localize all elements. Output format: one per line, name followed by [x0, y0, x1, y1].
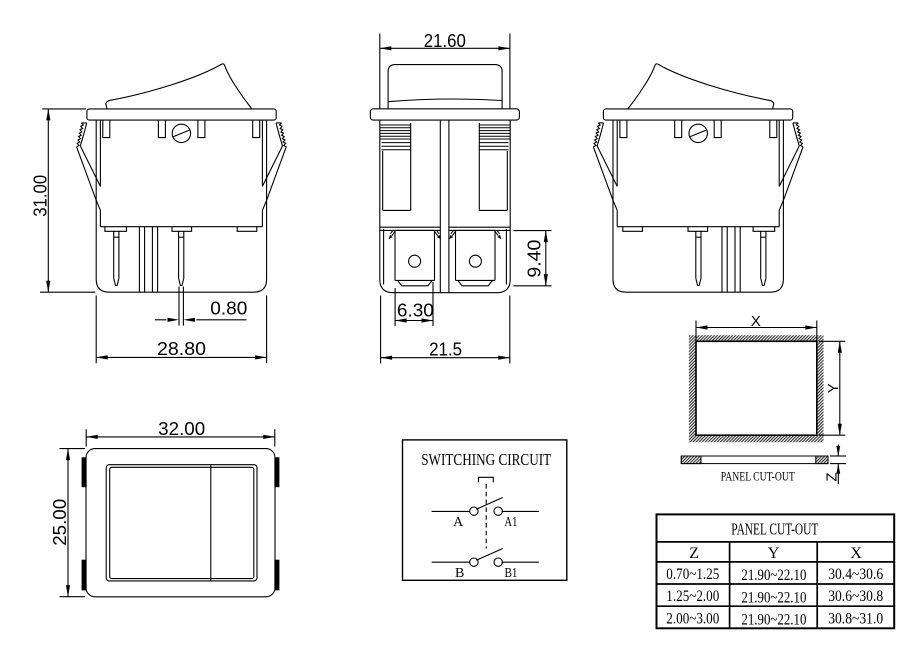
svg-text:30.8~31.0: 30.8~31.0: [828, 610, 883, 627]
svg-text:B1: B1: [505, 566, 518, 581]
svg-text:9.40: 9.40: [525, 240, 545, 278]
svg-text:PANEL CUT-OUT: PANEL CUT-OUT: [731, 520, 818, 539]
svg-text:28.80: 28.80: [157, 339, 206, 359]
svg-text:X: X: [751, 313, 761, 330]
svg-text:B: B: [455, 566, 464, 581]
svg-text:0.70~1.25: 0.70~1.25: [666, 566, 719, 583]
svg-text:A: A: [453, 515, 464, 530]
svg-text:Z: Z: [824, 472, 841, 481]
svg-text:30.6~30.8: 30.6~30.8: [828, 588, 883, 605]
svg-text:A1: A1: [504, 515, 517, 530]
svg-text:Z: Z: [689, 545, 699, 562]
svg-text:31.00: 31.00: [31, 175, 51, 217]
svg-text:2.00~3.00: 2.00~3.00: [666, 610, 719, 627]
svg-text:SWITCHING CIRCUIT: SWITCHING CIRCUIT: [421, 450, 551, 469]
svg-text:6.30: 6.30: [397, 301, 434, 321]
svg-text:0.80: 0.80: [210, 299, 247, 319]
svg-text:21.60: 21.60: [424, 31, 466, 51]
svg-text:30.4~30.6: 30.4~30.6: [828, 566, 883, 583]
svg-text:PANEL CUT-OUT: PANEL CUT-OUT: [721, 469, 795, 483]
svg-text:21.90~22.10: 21.90~22.10: [741, 567, 806, 584]
svg-text:32.00: 32.00: [158, 419, 205, 439]
svg-text:25.00: 25.00: [50, 499, 70, 546]
svg-text:1.25~2.00: 1.25~2.00: [666, 588, 719, 605]
svg-text:X: X: [850, 545, 862, 562]
svg-text:Y: Y: [768, 545, 780, 562]
svg-text:21.90~22.10: 21.90~22.10: [741, 612, 806, 629]
svg-text:21.90~22.10: 21.90~22.10: [741, 589, 806, 606]
svg-text:Y: Y: [825, 383, 842, 393]
svg-text:21.5: 21.5: [429, 340, 462, 360]
